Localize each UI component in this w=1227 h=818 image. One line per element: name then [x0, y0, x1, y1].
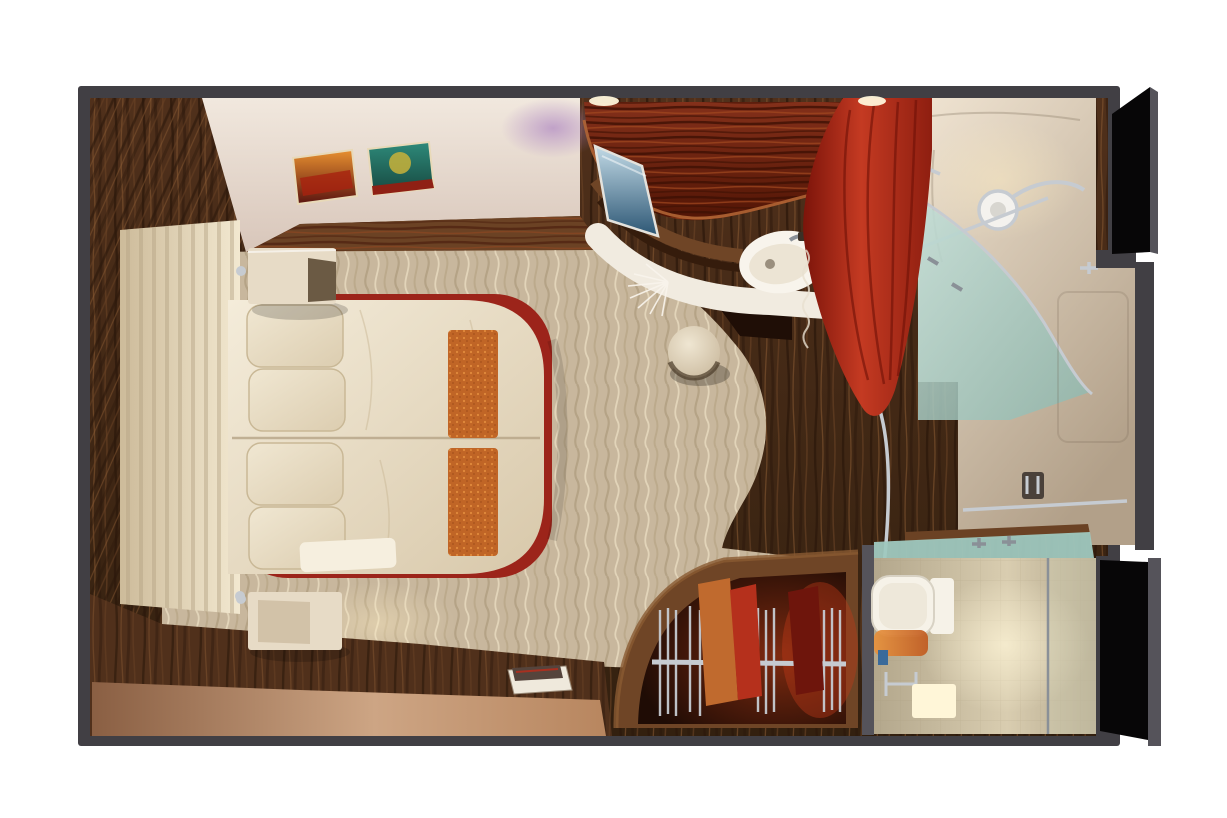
nightstand-bottom-opening — [258, 600, 310, 644]
spotlight-icon — [589, 96, 619, 106]
glowing-cube-light — [912, 684, 956, 718]
wall-art-sunset — [293, 150, 357, 204]
entry-door-frame — [1150, 87, 1158, 254]
wc-toiletry-blue — [878, 650, 888, 665]
runner-bottom-texture — [448, 448, 498, 556]
ceiling-band — [202, 98, 606, 270]
spotlight-icon — [858, 96, 886, 106]
headboard — [120, 220, 246, 614]
nightstand-bottom — [235, 591, 350, 662]
vanity-outer-wall — [1135, 262, 1154, 550]
wc-corner-post — [862, 545, 874, 735]
nightstand-lamp-icon — [235, 591, 245, 601]
book-on-floor — [508, 665, 572, 694]
door-lock-plate — [1022, 472, 1044, 499]
reading-lamp-top-icon — [236, 266, 246, 276]
stateroom-cutaway-render — [0, 0, 1227, 818]
wall-art-teal — [368, 142, 434, 195]
drain — [765, 259, 775, 269]
wc-cubicle — [862, 524, 1108, 736]
folded-towel — [299, 538, 396, 573]
nightstand-top-opening — [308, 258, 336, 302]
pillow — [249, 369, 345, 431]
wc-glass-pane — [1048, 558, 1096, 734]
doorway-bottom — [1100, 560, 1148, 740]
art-teal-tree — [389, 152, 411, 174]
toilet — [872, 576, 954, 636]
toilet-lid — [879, 583, 927, 629]
headboard-slats — [120, 220, 240, 614]
entry-door-open — [1112, 87, 1150, 254]
runner-top-texture — [448, 330, 498, 438]
nightstand-top — [248, 248, 348, 320]
bed — [228, 294, 563, 578]
render-canvas — [0, 0, 1227, 818]
pillow — [247, 443, 343, 505]
doorway-bottom-frame — [1148, 558, 1161, 746]
